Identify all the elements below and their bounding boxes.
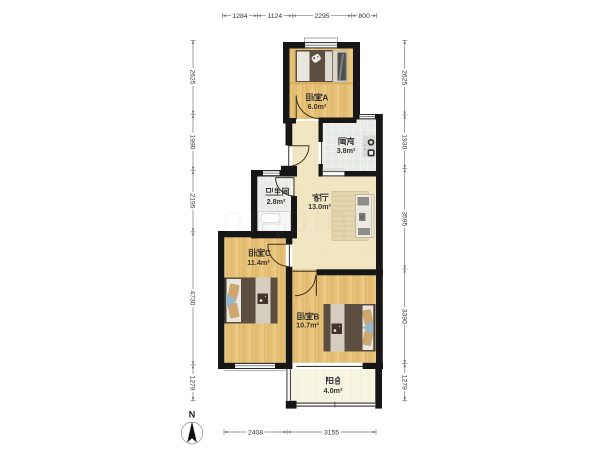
svg-text:6.0m²: 6.0m² bbox=[308, 102, 327, 111]
svg-text:10.7m²: 10.7m² bbox=[296, 320, 319, 329]
svg-text:1279: 1279 bbox=[400, 375, 407, 390]
svg-text:N: N bbox=[189, 410, 196, 420]
svg-text:2408: 2408 bbox=[248, 429, 263, 436]
svg-text:800: 800 bbox=[359, 13, 371, 20]
svg-text:2195: 2195 bbox=[189, 193, 196, 208]
svg-text:2295: 2295 bbox=[314, 13, 329, 20]
svg-text:oiqoiqo: oiqoiqo bbox=[221, 197, 378, 241]
svg-text:3155: 3155 bbox=[324, 429, 339, 436]
svg-text:1279: 1279 bbox=[189, 375, 196, 390]
svg-text:2625: 2625 bbox=[400, 70, 407, 85]
svg-text:4730: 4730 bbox=[189, 290, 196, 305]
svg-text:C: C bbox=[265, 249, 271, 258]
svg-text:11.4m²: 11.4m² bbox=[247, 258, 270, 267]
svg-text:1930: 1930 bbox=[400, 134, 407, 149]
svg-text:4.0m²: 4.0m² bbox=[324, 386, 343, 395]
svg-text:3.8m²: 3.8m² bbox=[337, 146, 356, 155]
svg-text:1284: 1284 bbox=[232, 13, 247, 20]
svg-text:1124: 1124 bbox=[267, 13, 282, 20]
svg-text:1990: 1990 bbox=[189, 134, 196, 149]
svg-text:3595: 3595 bbox=[400, 211, 407, 226]
svg-text:2625: 2625 bbox=[189, 69, 196, 84]
svg-text:3390: 3390 bbox=[400, 309, 407, 324]
